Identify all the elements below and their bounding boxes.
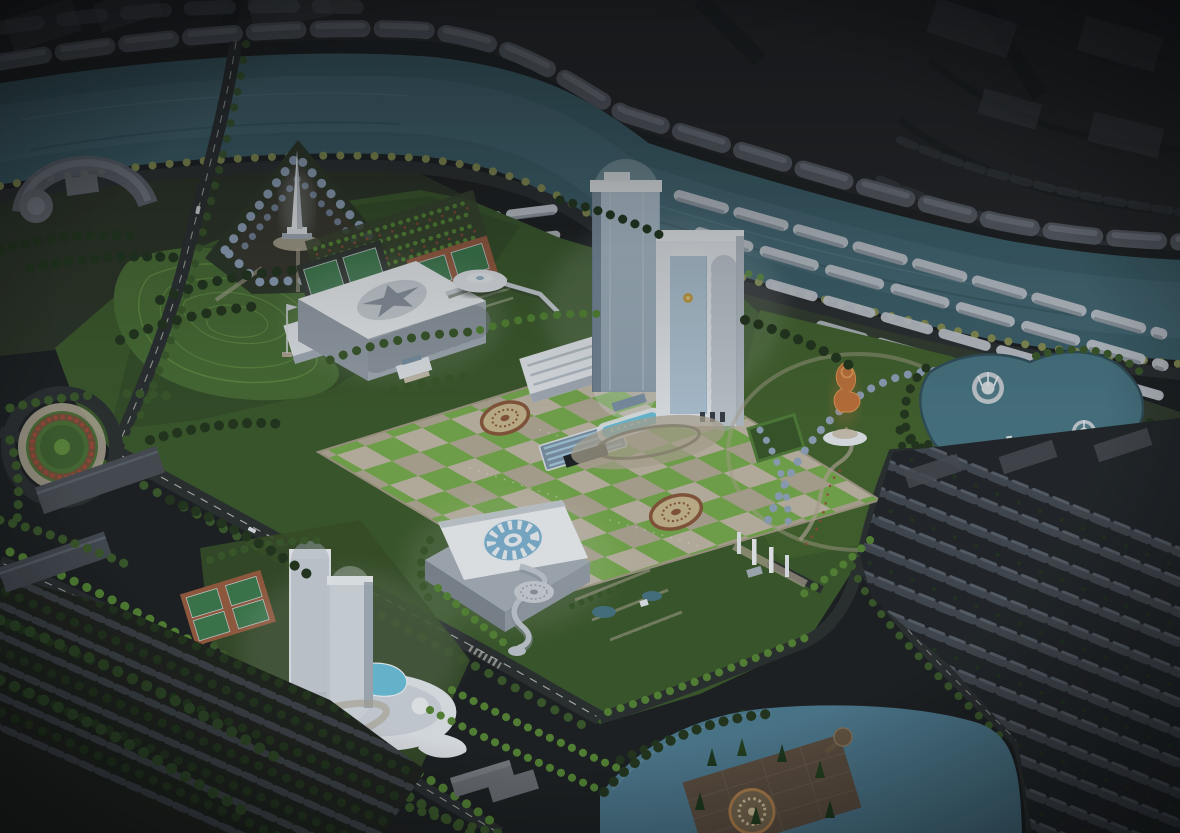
aerial-rendering-canvas: Bird's-eye night rendering: a curved riv… xyxy=(0,0,1180,833)
masterplan-rendering: Bird's-eye night rendering: a curved riv… xyxy=(0,0,1180,833)
global-dim xyxy=(0,0,1180,833)
